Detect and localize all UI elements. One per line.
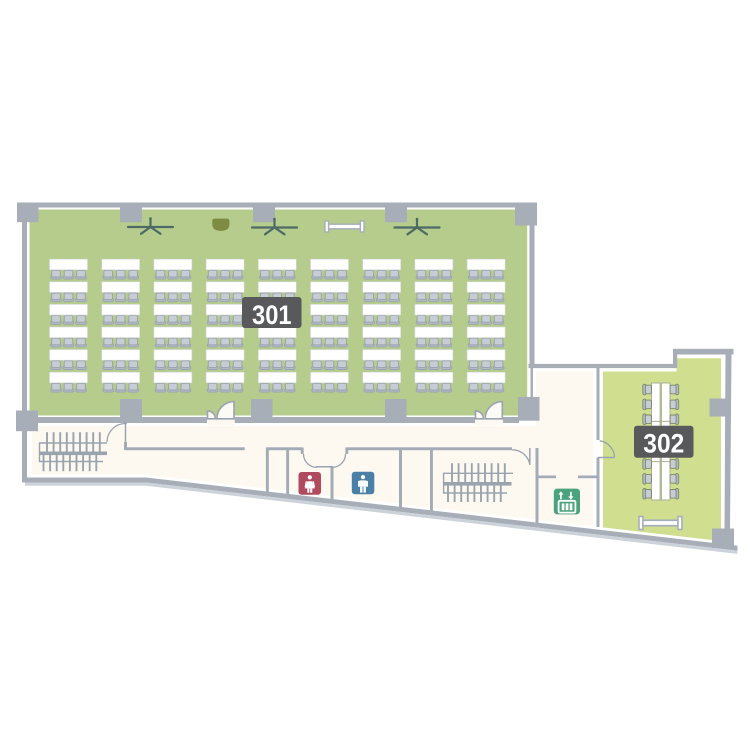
svg-text:302: 302	[643, 428, 684, 458]
svg-text:301: 301	[252, 300, 292, 330]
